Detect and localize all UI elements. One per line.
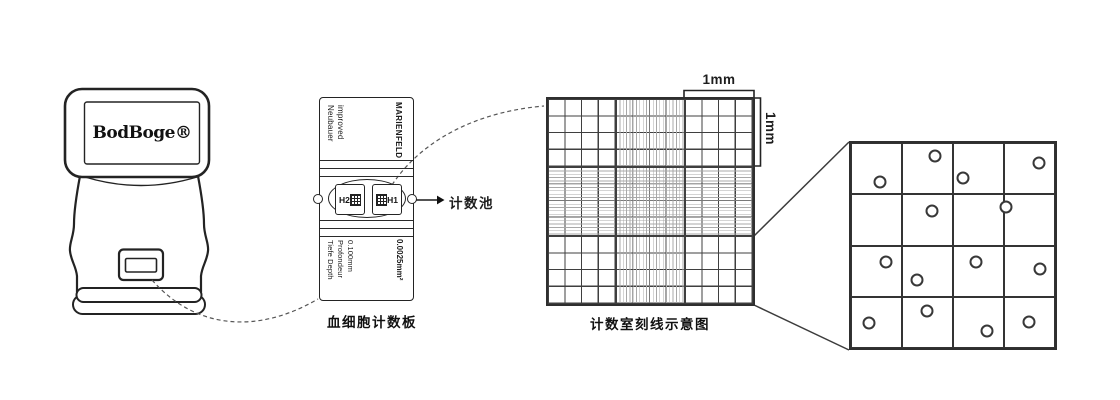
magnified-square	[849, 141, 1057, 350]
grid-cell-fine-both	[616, 167, 684, 235]
slide-brand-line-1: Neubauer	[326, 105, 335, 142]
grid-cell-fine-horizontal	[685, 167, 753, 235]
device-slot-inner	[126, 259, 157, 273]
grid-cell-coarse	[548, 99, 616, 167]
slide-brand-line-2: improved	[336, 105, 345, 140]
device-logo: BodBoge®	[85, 102, 199, 164]
magnified-cell	[953, 194, 1004, 245]
grid-cell-fine-vertical	[616, 99, 684, 167]
slide-divider	[320, 176, 413, 177]
magnified-cell	[851, 246, 902, 297]
dimension-label-right: 1mm	[763, 112, 778, 145]
magnified-cell	[851, 194, 902, 245]
slide-depth-line-1: Tiefe Depth	[326, 240, 335, 280]
magnified-cell	[1004, 194, 1055, 245]
chamber-grid-icon	[350, 194, 361, 206]
slide-notch-right	[407, 194, 417, 204]
magnified-cell	[953, 143, 1004, 194]
device-base-upper	[77, 288, 202, 302]
callout-line-bottom	[754, 305, 849, 350]
magnified-cell	[1004, 246, 1055, 297]
magnified-cell	[1004, 297, 1055, 348]
chamber-h1-label: H1	[387, 195, 398, 205]
chamber-h2-label: H2	[339, 195, 350, 205]
diagram-canvas: BodBoge® Neubauer improved MARIENFELD H2…	[0, 0, 1120, 400]
chamber-grid-icon	[376, 194, 387, 206]
pointer-arrow-head	[437, 196, 445, 205]
dim-bracket-right	[755, 98, 761, 166]
chamber-h2: H2	[335, 184, 365, 215]
callout-line-top	[754, 142, 849, 236]
grid-cell-coarse	[685, 99, 753, 167]
slide-divider	[320, 160, 413, 161]
chamber-h1: H1	[372, 184, 402, 215]
counting-pool-label: 计数池	[449, 192, 494, 212]
slide-caption: 血细胞计数板	[312, 311, 432, 331]
slide-divider	[320, 220, 413, 221]
slide-divider	[320, 228, 413, 229]
magnified-cell	[902, 143, 953, 194]
magnified-cell	[851, 297, 902, 348]
magnified-cell	[953, 246, 1004, 297]
magnified-cell	[902, 194, 953, 245]
slide-divider	[320, 168, 413, 169]
magnified-cell	[902, 246, 953, 297]
grid-cell-coarse	[685, 236, 753, 304]
grid-cell-fine-horizontal	[548, 167, 616, 235]
hemocytometer-slide: Neubauer improved MARIENFELD H2 H1 Tiefe…	[319, 97, 414, 301]
grid-cell-fine-vertical	[616, 236, 684, 304]
slide-divider	[320, 236, 413, 237]
grid-cell-coarse	[548, 236, 616, 304]
dimension-label-top: 1mm	[689, 72, 749, 87]
slide-depth-line-2: Profondeur	[336, 240, 345, 278]
slide-area-label: 0.0025mm²	[395, 239, 404, 280]
grid-caption: 计数室刻线示意图	[574, 313, 726, 333]
counting-grid	[546, 97, 755, 306]
magnified-cell	[1004, 143, 1055, 194]
magnified-cell	[953, 297, 1004, 348]
slide-notch-left	[313, 194, 323, 204]
slide-maker-label: MARIENFELD	[394, 102, 403, 158]
magnified-cell	[902, 297, 953, 348]
slide-depth-line-3: 0.100mm	[346, 240, 355, 272]
magnified-cell	[851, 143, 902, 194]
